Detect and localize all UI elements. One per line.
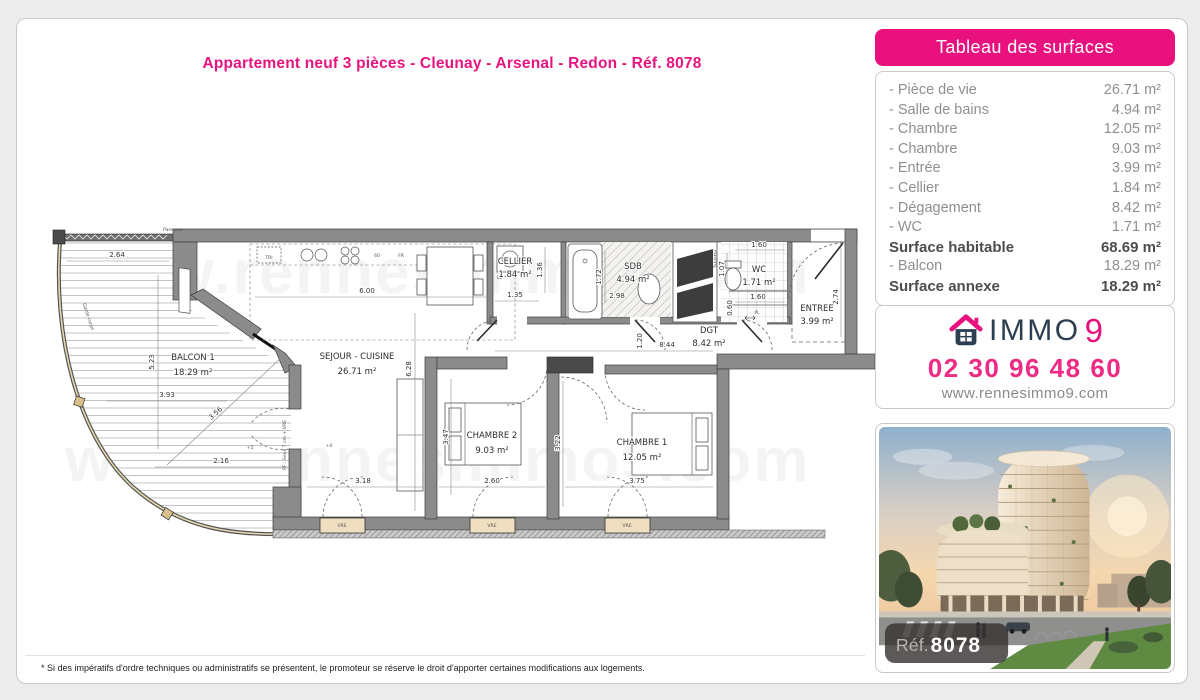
- svg-text:60: 60: [374, 253, 380, 259]
- svg-text:3.47: 3.47: [442, 429, 450, 445]
- room-label-dgt: DGT: [700, 326, 719, 336]
- svg-text:4.94 m²: 4.94 m²: [616, 275, 649, 285]
- dining-table: [417, 247, 483, 305]
- svg-text:1.72: 1.72: [595, 269, 603, 285]
- table-row: - WC1.71 m²: [889, 218, 1161, 238]
- svg-text:2.74: 2.74: [832, 289, 840, 305]
- logo-text-immo: IMMO: [989, 314, 1081, 348]
- table-row-total-habitable: Surface habitable68.69 m²: [889, 238, 1161, 258]
- svg-text:9.03 m²: 9.03 m²: [475, 446, 508, 456]
- svg-text:2.60: 2.60: [484, 477, 500, 485]
- corner-window: [179, 268, 190, 314]
- diagonal-window: [253, 334, 277, 350]
- svg-text:+5: +5: [247, 445, 254, 451]
- svg-text:VRE: VRE: [487, 523, 496, 529]
- svg-text:PL: PL: [754, 310, 760, 316]
- svg-text:1.07: 1.07: [718, 261, 726, 277]
- svg-text:5.23: 5.23: [148, 354, 156, 370]
- svg-text:PF : Seuil 7 cm + VRE: PF : Seuil 7 cm + VRE: [282, 420, 288, 470]
- room-label-entree: ENTREE: [800, 304, 834, 314]
- table-row: - Balcon18.29 m²: [889, 257, 1161, 277]
- svg-text:6.28: 6.28: [405, 361, 413, 377]
- svg-text:2.98: 2.98: [609, 292, 625, 300]
- page-card: Appartement neuf 3 pièces - Cleunay - Ar…: [16, 18, 1188, 684]
- svg-text:0.60: 0.60: [726, 300, 734, 316]
- svg-text:1.60: 1.60: [750, 293, 766, 301]
- immo9-logo: IMMO9: [947, 312, 1103, 350]
- immo9-house-icon: [947, 313, 985, 349]
- svg-text:1.36: 1.36: [536, 262, 544, 278]
- svg-text:VRE: VRE: [337, 523, 346, 529]
- svg-text:12.05 m²: 12.05 m²: [623, 453, 662, 463]
- table-row-total-annexe: Surface annexe18.29 m²: [889, 277, 1161, 297]
- svg-text:18.29 m²: 18.29 m²: [174, 368, 213, 378]
- floorplan-container: www.rennesimmo9.com www.rennesimmo9.com: [45, 217, 877, 569]
- room-label-wc: WC: [752, 265, 766, 275]
- table-row: - Cellier1.84 m²: [889, 179, 1161, 199]
- technical-shaft: [673, 242, 717, 322]
- svg-text:3.75: 3.75: [629, 477, 645, 485]
- svg-text:Pare vue: Pare vue: [163, 227, 183, 233]
- toilet: [725, 261, 741, 290]
- svg-text:3.18: 3.18: [355, 477, 371, 485]
- room-label-chambre1: CHAMBRE 1: [617, 438, 668, 448]
- table-row: - Pièce de vie26.71 m²: [889, 81, 1161, 101]
- surfaces-panel-header: Tableau des surfaces: [875, 29, 1175, 66]
- svg-text:2.64: 2.64: [109, 251, 125, 259]
- svg-text:3.99 m²: 3.99 m²: [800, 317, 833, 327]
- svg-text:VRE: VRE: [622, 523, 631, 529]
- table-row: - Chambre12.05 m²: [889, 120, 1161, 140]
- svg-text:1.60: 1.60: [751, 241, 767, 249]
- room-label-balcon: BALCON 1: [171, 353, 214, 363]
- room-label-sdb: SDB: [624, 262, 642, 272]
- agency-phone[interactable]: 02 30 96 48 60: [928, 353, 1123, 384]
- svg-text:1.84 m²: 1.84 m²: [498, 270, 531, 280]
- room-label-cellier: CELLIER: [498, 257, 533, 267]
- room-label-chambre2: CHAMBRE 2: [467, 431, 518, 441]
- table-row: - Salle de bains4.94 m²: [889, 101, 1161, 121]
- svg-text:+0: +0: [326, 443, 333, 449]
- svg-text:6.00: 6.00: [359, 287, 375, 295]
- page-title: Appartement neuf 3 pièces - Cleunay - Ar…: [47, 55, 857, 73]
- svg-text:8.44: 8.44: [659, 341, 675, 349]
- agency-website-link[interactable]: www.rennesimmo9.com: [942, 385, 1109, 402]
- ref-badge: Réf. 8078: [885, 623, 1008, 663]
- ref-number: 8078: [931, 634, 981, 657]
- svg-text:1.20: 1.20: [636, 333, 644, 349]
- logo-text-9: 9: [1085, 312, 1103, 350]
- svg-text:2.16: 2.16: [213, 457, 229, 465]
- table-row: - Chambre9.03 m²: [889, 140, 1161, 160]
- svg-text:8.42 m²: 8.42 m²: [692, 339, 725, 349]
- legal-footnote: * Si des impératifs d'ordre techniques o…: [25, 655, 865, 673]
- table-row: - Dégagement8.42 m²: [889, 199, 1161, 219]
- svg-text:TRI: TRI: [264, 255, 272, 261]
- ref-label: Réf.: [896, 635, 929, 655]
- floorplan: www.rennesimmo9.com www.rennesimmo9.com: [45, 217, 877, 569]
- svg-text:1.35: 1.35: [507, 291, 523, 299]
- building-photo-card: Réf. 8078: [875, 423, 1175, 673]
- building-render: Réf. 8078: [879, 427, 1171, 669]
- svg-text:26.71 m²: 26.71 m²: [338, 367, 377, 377]
- pare-vue-screen: [57, 234, 173, 241]
- surfaces-table: - Pièce de vie26.71 m² - Salle de bains4…: [875, 71, 1175, 306]
- agency-contact-card: IMMO9 02 30 96 48 60 www.rennesimmo9.com: [875, 305, 1175, 409]
- svg-text:FR: FR: [398, 253, 405, 259]
- svg-text:3.93: 3.93: [159, 391, 175, 399]
- room-label-sejour: SEJOUR - CUISINE: [320, 352, 395, 362]
- table-row: - Entrée3.99 m²: [889, 159, 1161, 179]
- svg-text:3.22: 3.22: [554, 435, 562, 451]
- svg-text:1.71 m²: 1.71 m²: [742, 278, 775, 288]
